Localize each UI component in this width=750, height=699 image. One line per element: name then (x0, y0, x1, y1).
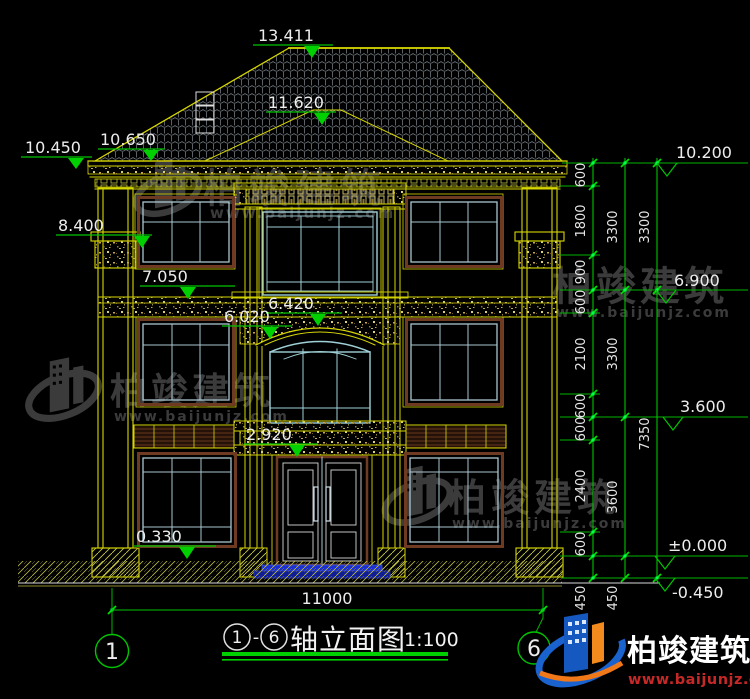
dim-value: 600 (574, 532, 589, 557)
watermark-brand: 柏竣建筑 (110, 370, 274, 413)
watermark-brand: 柏竣建筑 (448, 476, 620, 520)
dim-value: 600 (574, 290, 589, 315)
dim-value: 2100 (574, 337, 589, 370)
louver-band-left (134, 425, 234, 448)
dim-value: 900 (574, 260, 589, 285)
drawing-canvas: 柏竣建筑 www.baijunjz.com 柏竣建筑 www.baijunjz.… (0, 0, 750, 699)
level-label: 6.900 (674, 271, 720, 290)
level-label: 3.600 (680, 397, 726, 416)
dim-value: 7350 (638, 417, 653, 450)
title-scale: 1:100 (404, 629, 459, 651)
dim-value: 450 (606, 586, 621, 611)
dim-value: 600 (574, 163, 589, 188)
louver-band-right (406, 425, 506, 448)
title-underline-thick (222, 652, 448, 656)
dim-value: 3300 (606, 210, 621, 243)
level-label: 7.050 (142, 267, 188, 286)
brand-logo-name: 柏竣建筑 (627, 634, 750, 669)
level-label: 13.411 (258, 26, 314, 45)
dim-value: 3300 (606, 337, 621, 370)
watermark-url: www.baijunjz.com (452, 516, 627, 532)
title-text: 轴立面图 (290, 623, 406, 656)
level-label: 6.020 (224, 307, 270, 326)
level-label: 0.330 (136, 527, 182, 546)
brand-logo-url: www.baijunjz.com (628, 672, 750, 688)
level-label: -0.450 (672, 583, 724, 602)
level-label: ±0.000 (668, 536, 727, 555)
level-label: 8.400 (58, 216, 104, 235)
dim-value: 600 (574, 417, 589, 442)
level-label: 6.420 (268, 294, 314, 313)
level-label: 10.200 (676, 143, 732, 162)
dim-overall-width: 11000 (302, 589, 353, 608)
level-label: 10.650 (100, 130, 156, 149)
watermark-url: www.baijunjz.com (210, 204, 395, 222)
title-axis-to: 6 (269, 628, 280, 648)
dim-value: 2400 (574, 469, 589, 502)
drawing-title: 1 - 6 轴立面图 1:100 (222, 623, 459, 661)
dim-value: 3300 (638, 210, 653, 243)
title-dash: - (253, 627, 260, 648)
dim-value: 450 (574, 586, 589, 611)
dim-value: 3600 (606, 480, 621, 513)
title-axis-from: 1 (232, 628, 243, 648)
level-label: 10.450 (25, 138, 81, 157)
title-underline-thin (222, 659, 448, 661)
cad-elevation-drawing: 柏竣建筑 www.baijunjz.com 柏竣建筑 www.baijunjz.… (0, 0, 750, 699)
axis-number: 1 (105, 640, 119, 665)
dim-value: 600 (574, 394, 589, 419)
level-label: 2.920 (246, 425, 292, 444)
level-label: 11.620 (268, 93, 324, 112)
dim-value: 1800 (574, 204, 589, 237)
